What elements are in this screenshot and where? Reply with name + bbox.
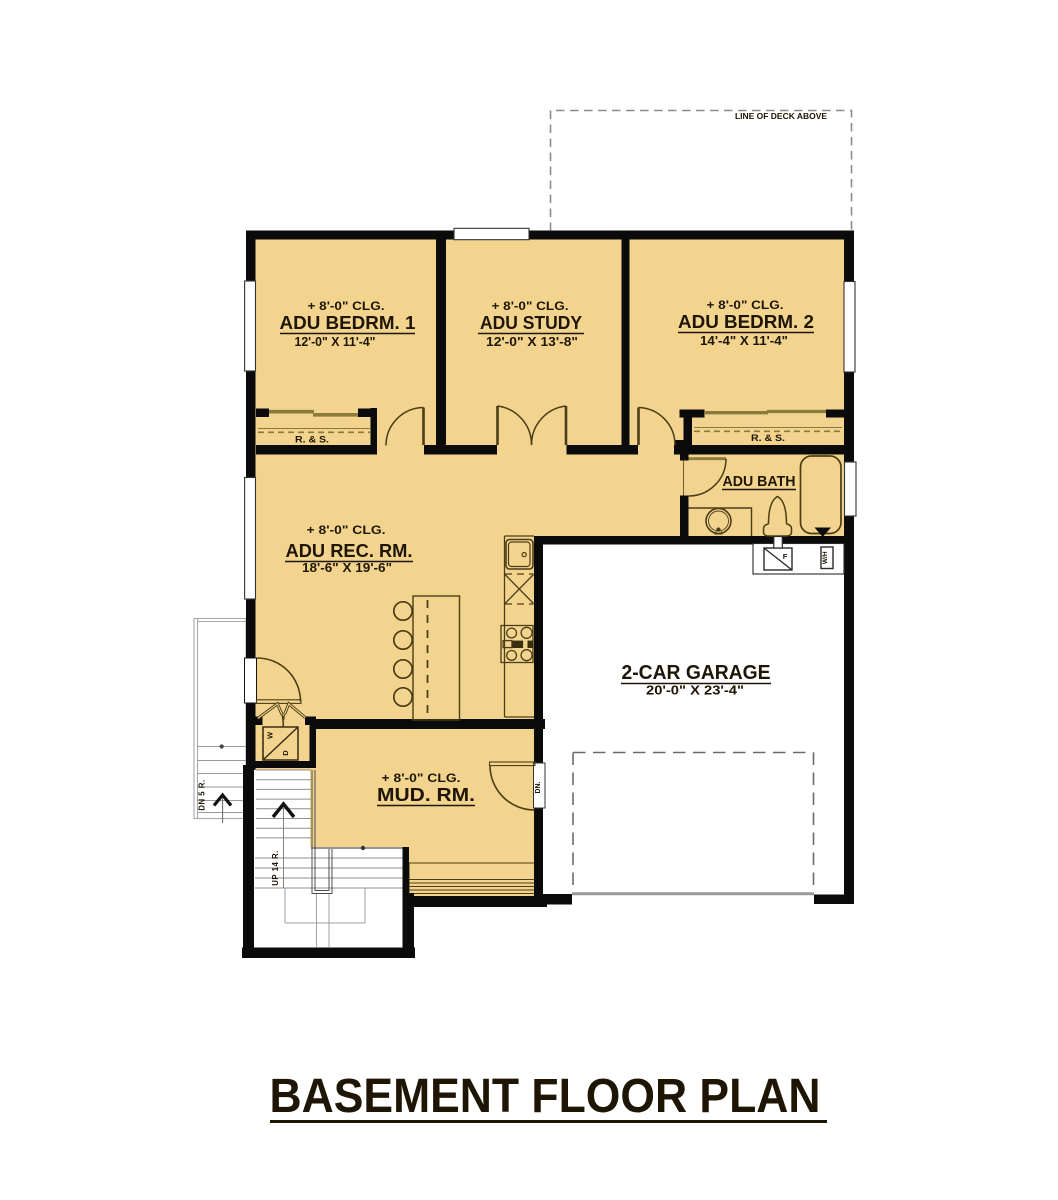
- svg-text:+ 8'-0" CLG.: + 8'-0" CLG.: [707, 298, 784, 312]
- svg-text:ADU REC. RM.: ADU REC. RM.: [286, 541, 413, 561]
- svg-text:20'-0" X 23'-4": 20'-0" X 23'-4": [646, 683, 744, 698]
- svg-text:14'-4" X 11'-4": 14'-4" X 11'-4": [700, 333, 788, 348]
- svg-text:ADU STUDY: ADU STUDY: [480, 313, 582, 333]
- svg-text:BASEMENT FLOOR PLAN: BASEMENT FLOOR PLAN: [270, 1070, 821, 1123]
- svg-text:+ 8'-0" CLG.: + 8'-0" CLG.: [307, 523, 386, 537]
- svg-text:12'-0" X 11'-4": 12'-0" X 11'-4": [295, 334, 376, 349]
- svg-text:MUD. RM.: MUD. RM.: [377, 785, 475, 805]
- svg-text:2-CAR GARAGE: 2-CAR GARAGE: [622, 662, 771, 684]
- svg-text:ADU BEDRM. 2: ADU BEDRM. 2: [678, 312, 814, 332]
- svg-text:ADU BATH: ADU BATH: [723, 473, 796, 490]
- svg-text:+ 8'-0" CLG.: + 8'-0" CLG.: [308, 299, 385, 313]
- svg-text:+ 8'-0" CLG.: + 8'-0" CLG.: [492, 299, 569, 313]
- svg-text:W/H: W/H: [822, 551, 829, 564]
- svg-text:18'-6" X 19'-6": 18'-6" X 19'-6": [302, 560, 392, 575]
- svg-text:ADU BEDRM. 1: ADU BEDRM. 1: [280, 313, 416, 333]
- svg-text:12'-0" X 13'-8": 12'-0" X 13'-8": [486, 334, 578, 349]
- svg-text:R. & S.: R. & S.: [295, 435, 329, 445]
- svg-text:R. & S.: R. & S.: [751, 433, 785, 443]
- svg-text:LINE OF DECK ABOVE: LINE OF DECK ABOVE: [735, 111, 827, 121]
- svg-text:W: W: [266, 731, 275, 739]
- svg-text:+ 8'-0" CLG.: + 8'-0" CLG.: [382, 771, 461, 785]
- svg-text:F: F: [783, 552, 788, 561]
- svg-text:DN.: DN.: [535, 781, 542, 793]
- svg-text:DN 5 R.: DN 5 R.: [198, 779, 207, 810]
- svg-text:D: D: [281, 750, 290, 756]
- svg-text:UP 14 R.: UP 14 R.: [271, 850, 280, 886]
